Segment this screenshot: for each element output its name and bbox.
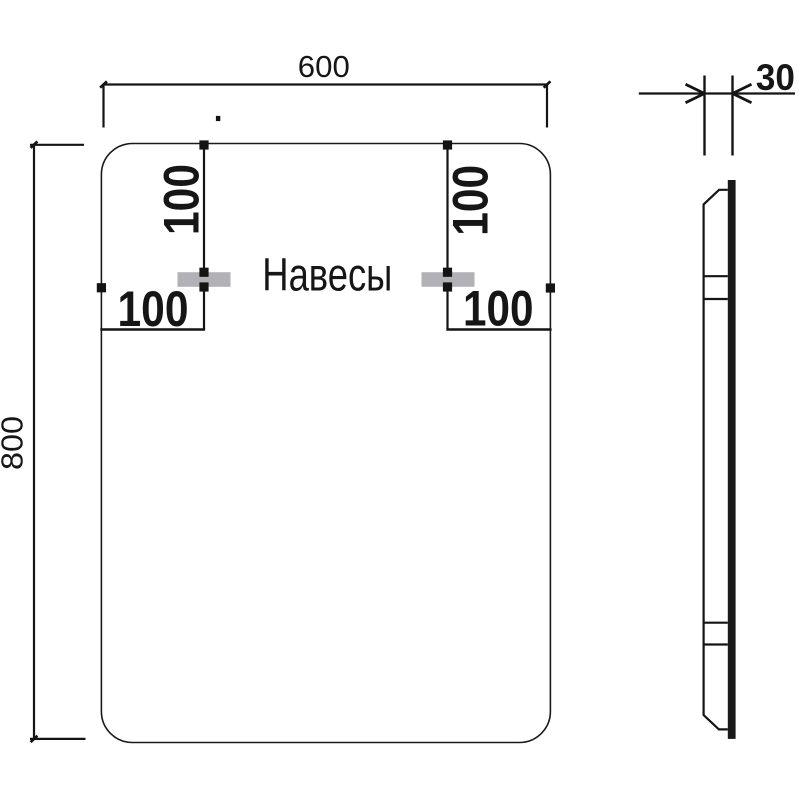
svg-text:600: 600 xyxy=(298,49,350,84)
svg-text:800: 800 xyxy=(0,416,30,470)
svg-text:100: 100 xyxy=(443,165,499,236)
svg-text:100: 100 xyxy=(153,164,209,235)
svg-text:100: 100 xyxy=(463,281,534,337)
svg-text:100: 100 xyxy=(118,281,189,337)
svg-text:Навесы: Навесы xyxy=(262,248,392,300)
svg-text:30: 30 xyxy=(756,57,795,98)
